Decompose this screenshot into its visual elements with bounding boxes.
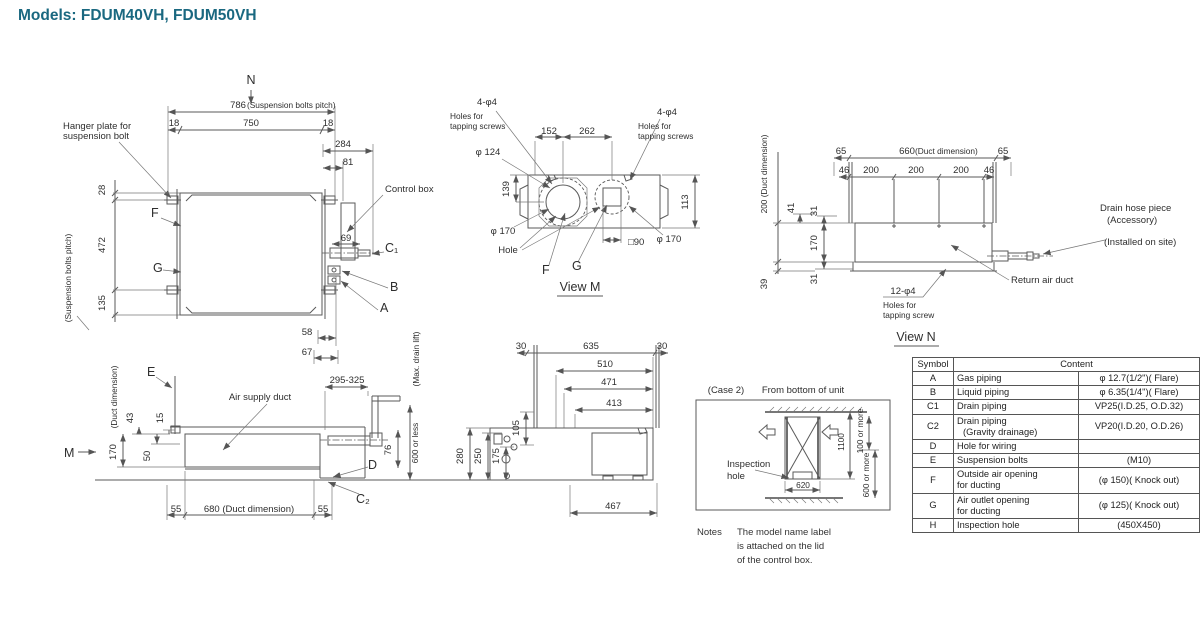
dim-200-a: 200 xyxy=(863,165,879,176)
dim-55-left: 55 xyxy=(171,504,182,515)
dim-46-right: 46 xyxy=(984,165,995,176)
label-f: F xyxy=(151,206,159,220)
label-m: M xyxy=(64,446,74,460)
dim-413: 413 xyxy=(606,398,622,409)
dim-139: 139 xyxy=(501,181,512,197)
table-row: A Gas piping φ 12.7(1/2")( Flare) xyxy=(913,372,1200,386)
dim-phi124: φ 124 xyxy=(476,147,501,158)
tapping-note2: tapping screw xyxy=(883,310,935,320)
symbol-cell: C2 xyxy=(913,414,954,439)
table-row: D Hole for wiring xyxy=(913,439,1200,453)
suspension-pitch-label: (Suspension bolts pitch) xyxy=(63,233,73,322)
case2-label: (Case 2) xyxy=(708,385,744,396)
dim-284: 284 xyxy=(335,139,351,150)
view-n-title: View N xyxy=(896,330,935,344)
dim-105: 105 xyxy=(511,420,522,436)
dim-55-right: 55 xyxy=(318,504,329,515)
dim-phi170-right: φ 170 xyxy=(657,234,682,245)
label-g: G xyxy=(153,261,163,275)
label-c1: C₁ xyxy=(385,241,398,255)
air-supply-duct-label: Air supply duct xyxy=(229,392,292,403)
dim-31-top: 31 xyxy=(809,206,820,217)
dim-250: 250 xyxy=(473,448,484,464)
name-cell: Suspension bolts xyxy=(954,454,1079,468)
dim-81: 81 xyxy=(343,157,354,168)
view-m-drawing: 4-φ4 Holes for tapping screws 4-φ4 Holes… xyxy=(430,85,730,320)
hanger-plate-label2: suspension bolt xyxy=(63,131,129,142)
tapping-note-right1: Holes for xyxy=(638,121,671,131)
name-line2: for ducting xyxy=(957,480,1075,491)
dim-30-left: 30 xyxy=(516,341,527,352)
dim-1100: 1100 xyxy=(836,433,846,451)
drain-hose-label3: (Installed on site) xyxy=(1104,237,1176,248)
dim-786-note: (Suspension bolts pitch) xyxy=(247,100,336,110)
drain-hose-label2: (Accessory) xyxy=(1107,215,1157,226)
symbol-cell: H xyxy=(913,518,954,532)
dim-sq90: □90 xyxy=(628,237,644,248)
dim-152: 152 xyxy=(541,126,557,137)
dim-4phi4-left: 4-φ4 xyxy=(477,97,497,108)
dim-786: 786 xyxy=(230,100,246,111)
dim-472: 472 xyxy=(97,237,108,253)
name-cell: Air outlet opening for ducting xyxy=(954,493,1079,518)
header-symbol: Symbol xyxy=(913,358,954,372)
from-bottom-label: From bottom of unit xyxy=(762,385,845,396)
name-cell: Drain piping (Gravity drainage) xyxy=(954,414,1079,439)
dim-46-left: 46 xyxy=(839,165,850,176)
label-a: A xyxy=(380,301,389,315)
return-air-duct-label: Return air duct xyxy=(1011,275,1074,286)
value-cell xyxy=(1079,439,1200,453)
dim-262: 262 xyxy=(579,126,595,137)
notes-line3: of the control box. xyxy=(737,554,897,568)
dim-620: 620 xyxy=(796,480,810,490)
symbol-cell: F xyxy=(913,468,954,493)
dim-170: 170 xyxy=(809,235,820,251)
dim-100-or-more: 100 or more xyxy=(855,408,865,453)
label-g: G xyxy=(572,259,582,273)
notes-line2: is attached on the lid xyxy=(737,540,897,554)
tapping-note1: Holes for xyxy=(883,300,916,310)
tapping-note-right2: tapping screws xyxy=(638,131,693,141)
dim-295-325: 295-325 xyxy=(330,375,365,386)
label-f: F xyxy=(542,263,550,277)
symbol-cell: A xyxy=(913,372,954,386)
view-m-title: View M xyxy=(560,280,601,294)
dim-31-bottom: 31 xyxy=(809,274,820,285)
dim-170: 170 xyxy=(108,444,119,460)
value-cell: (φ 150)( Knock out) xyxy=(1079,468,1200,493)
front-view-drawing: 30 635 30 510 471 413 105 175 250 280 46… xyxy=(450,335,715,530)
inspection-hole-label1: Inspection xyxy=(727,459,770,470)
view-n-drawing: 200 (Duct dimension) 65 660 (Duct dimens… xyxy=(755,112,1200,357)
symbol-cell: B xyxy=(913,386,954,400)
control-box-label: Control box xyxy=(385,184,434,195)
dim-4phi4-right: 4-φ4 xyxy=(657,107,677,118)
dim-467: 467 xyxy=(605,501,621,512)
dim-43: 43 xyxy=(125,413,136,424)
dim-600-or-less: 600 or less xyxy=(410,423,420,464)
table-row: H Inspection hole (450X450) xyxy=(913,518,1200,532)
dim-280: 280 xyxy=(455,448,466,464)
dim-113: 113 xyxy=(680,194,691,209)
notes-label: Notes xyxy=(697,526,722,540)
dim-660: 660 xyxy=(899,146,915,157)
symbol-cell: D xyxy=(913,439,954,453)
table-row: E Suspension bolts (M10) xyxy=(913,454,1200,468)
table-row: F Outside air opening for ducting (φ 150… xyxy=(913,468,1200,493)
dim-65-left: 65 xyxy=(836,146,847,157)
side-view-drawing: E (Duct dimension) 43 15 M 170 50 Air su… xyxy=(20,330,465,545)
value-cell: (φ 125)( Knock out) xyxy=(1079,493,1200,518)
name-line2: (Gravity drainage) xyxy=(957,427,1075,438)
value-cell: φ 12.7(1/2")( Flare) xyxy=(1079,372,1200,386)
dim-660-note: (Duct dimension) xyxy=(915,146,978,156)
dim-phi170-left: φ 170 xyxy=(491,226,516,237)
dim-15: 15 xyxy=(155,413,166,424)
name-line1: Drain piping xyxy=(957,416,1075,427)
symbol-cell: G xyxy=(913,493,954,518)
name-cell: Inspection hole xyxy=(954,518,1079,532)
dim-39: 39 xyxy=(759,279,770,290)
table-row: C1 Drain piping VP25(I.D.25, O.D.32) xyxy=(913,400,1200,414)
dim-635: 635 xyxy=(583,341,599,352)
notes-line1: The model name label xyxy=(737,526,897,540)
dim-175: 175 xyxy=(491,448,502,464)
dim-30-right: 30 xyxy=(657,341,668,352)
table-header-row: Symbol Content xyxy=(913,358,1200,372)
label-d: D xyxy=(368,458,377,472)
value-cell: (M10) xyxy=(1079,454,1200,468)
label-b: B xyxy=(390,280,398,294)
name-line2: for ducting xyxy=(957,506,1075,517)
drain-hose-label1: Drain hose piece xyxy=(1100,203,1171,214)
inspection-hole-label2: hole xyxy=(727,471,745,482)
value-cell: (450X450) xyxy=(1079,518,1200,532)
table-row: C2 Drain piping (Gravity drainage) VP20(… xyxy=(913,414,1200,439)
tapping-note-left2: tapping screws xyxy=(450,121,505,131)
name-cell: Outside air opening for ducting xyxy=(954,468,1079,493)
dim-12phi4: 12-φ4 xyxy=(890,286,915,297)
drawing-sheet: Models: FDUM40VH, FDUM50VH xyxy=(0,0,1200,617)
dim-28: 28 xyxy=(97,185,108,196)
tapping-note-left1: Holes for xyxy=(450,111,483,121)
hole-label: Hole xyxy=(498,245,518,256)
label-n: N xyxy=(246,73,255,87)
dim-50: 50 xyxy=(142,451,153,462)
name-cell: Hole for wiring xyxy=(954,439,1079,453)
dim-135: 135 xyxy=(97,295,108,311)
dim-41: 41 xyxy=(786,203,797,214)
name-line1: Air outlet opening xyxy=(957,495,1075,506)
dim-200-b: 200 xyxy=(908,165,924,176)
label-c2: C₂ xyxy=(356,492,370,506)
value-cell: VP20(I.D.20, O.D.26) xyxy=(1079,414,1200,439)
name-line1: Outside air opening xyxy=(957,469,1075,480)
front-view-lines xyxy=(450,345,668,517)
symbol-cell: E xyxy=(913,454,954,468)
name-cell: Liquid piping xyxy=(954,386,1079,400)
duct-dimension-note: (Duct dimension) xyxy=(109,365,119,428)
dim-471: 471 xyxy=(601,377,617,388)
label-e: E xyxy=(147,365,155,379)
name-cell: Gas piping xyxy=(954,372,1079,386)
dim-680: 680 (Duct dimension) xyxy=(204,504,294,515)
table-row: G Air outlet opening for ducting (φ 125)… xyxy=(913,493,1200,518)
dim-18-left: 18 xyxy=(169,118,180,129)
view-n-lines xyxy=(773,152,1105,346)
case2-inset-drawing: (Case 2) From bottom of unit Inspection … xyxy=(693,378,908,528)
dim-750: 750 xyxy=(243,118,259,129)
max-drain-lift-label: (Max. drain lift) xyxy=(411,331,421,386)
symbol-table: Symbol Content A Gas piping φ 12.7(1/2")… xyxy=(912,357,1200,533)
name-cell: Drain piping xyxy=(954,400,1079,414)
dim-69: 69 xyxy=(341,233,352,244)
dim-18-right: 18 xyxy=(323,118,334,129)
duct-200-label: 200 (Duct dimension) xyxy=(759,134,769,213)
value-cell: φ 6.35(1/4")( Flare) xyxy=(1079,386,1200,400)
dim-65-right: 65 xyxy=(998,146,1009,157)
dim-600-or-more: 600 or more xyxy=(861,452,871,497)
dim-200-c: 200 xyxy=(953,165,969,176)
page-title: Models: FDUM40VH, FDUM50VH xyxy=(18,7,257,25)
symbol-cell: C1 xyxy=(913,400,954,414)
value-cell: VP25(I.D.25, O.D.32) xyxy=(1079,400,1200,414)
dim-76: 76 xyxy=(383,445,394,456)
dim-510: 510 xyxy=(597,359,613,370)
table-row: B Liquid piping φ 6.35(1/4")( Flare) xyxy=(913,386,1200,400)
header-content: Content xyxy=(954,358,1200,372)
